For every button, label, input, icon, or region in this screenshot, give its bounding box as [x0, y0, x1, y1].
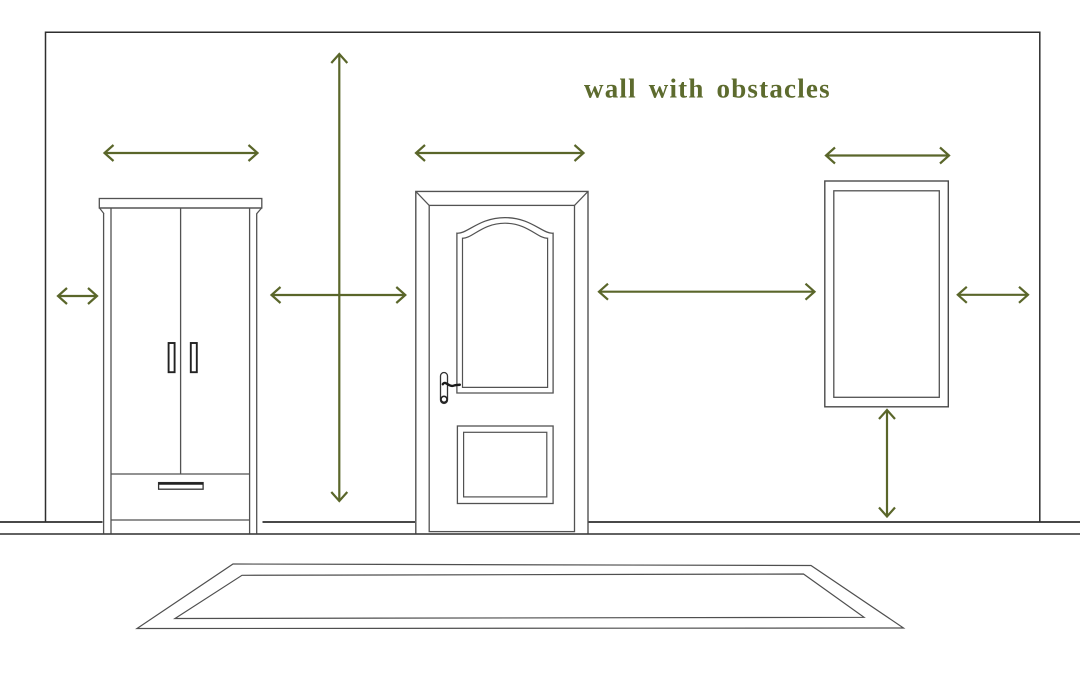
svg-text:wall with obstacles: wall with obstacles	[584, 74, 831, 104]
